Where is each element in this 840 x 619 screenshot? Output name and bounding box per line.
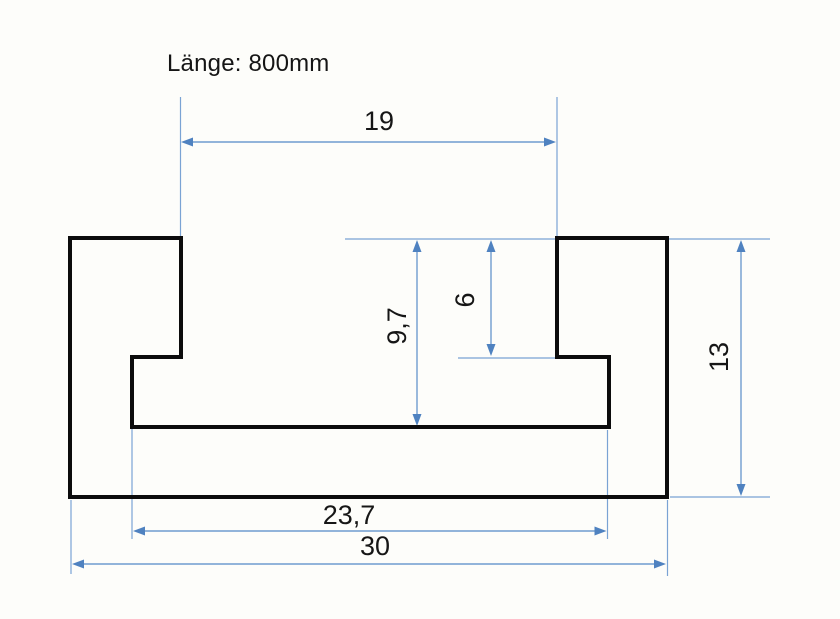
profile-outline (70, 238, 667, 497)
arrowhead (654, 560, 666, 569)
dimension-profile-height-label: 13 (704, 342, 734, 372)
drawing-canvas: Länge: 800mm 19 9,7 6 (0, 0, 840, 619)
arrowhead (737, 484, 746, 496)
arrowhead (544, 138, 556, 147)
arrowhead (413, 240, 422, 252)
arrowhead (133, 527, 145, 536)
arrowhead (487, 344, 496, 356)
dimension-cavity-width-label: 23,7 (323, 500, 376, 530)
dimension-profile-width-label: 30 (360, 531, 390, 561)
profile-drawing: 19 9,7 6 13 (0, 0, 840, 619)
dimension-lip-depth: 6 (450, 240, 556, 358)
dimension-slot-opening-width-label: 19 (364, 106, 394, 136)
dimension-cavity-width: 23,7 (132, 429, 608, 539)
dimension-slot-depth: 9,7 (382, 240, 422, 426)
dimension-slot-depth-label: 9,7 (382, 307, 412, 345)
arrowhead (181, 138, 193, 147)
arrowhead (737, 240, 746, 252)
dimension-profile-height: 13 (670, 240, 770, 497)
arrowhead (487, 240, 496, 252)
arrowhead (413, 414, 422, 426)
arrowhead (72, 560, 84, 569)
arrowhead (595, 527, 607, 536)
dimension-lip-depth-label: 6 (450, 292, 480, 307)
dimension-slot-opening-width: 19 (181, 97, 558, 238)
